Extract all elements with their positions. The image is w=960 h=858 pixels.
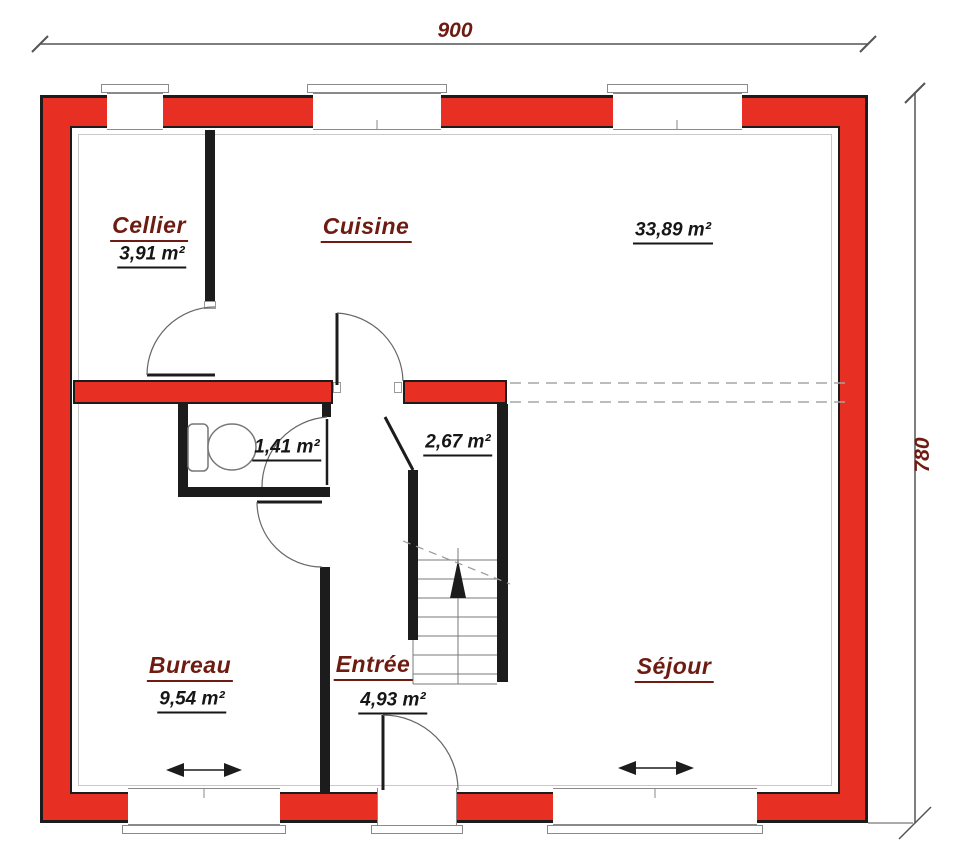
area-label-wc: 1,41 m² bbox=[252, 437, 321, 462]
wall-cellier-cuisine bbox=[205, 130, 215, 305]
dimension-tick bbox=[899, 807, 931, 839]
dimension-tick bbox=[32, 36, 48, 52]
dimension-tick bbox=[860, 36, 876, 52]
area-label-entree: 4,93 m² bbox=[358, 690, 427, 715]
window-sill-kitchen-right bbox=[607, 84, 748, 93]
wall-interior-red-right bbox=[403, 380, 507, 404]
window-sill-cellier bbox=[101, 84, 169, 93]
wall-stairs-right bbox=[497, 404, 508, 682]
wall-interior-red-left bbox=[73, 380, 333, 404]
window-cuisine bbox=[313, 93, 441, 130]
room-label-cuisine: Cuisine bbox=[321, 213, 412, 243]
window-sill-cuisine bbox=[307, 84, 447, 93]
window-sill-sejour bbox=[547, 825, 763, 834]
wall-wc-bottom bbox=[178, 487, 330, 497]
window-cellier bbox=[107, 93, 163, 130]
room-label-entree: Entrée bbox=[334, 651, 413, 681]
dimension-right-label: 780 bbox=[911, 437, 935, 472]
dimension-tick bbox=[905, 83, 925, 103]
window-sill-bureau bbox=[122, 825, 286, 834]
wall-stairs-left bbox=[408, 470, 418, 640]
window-bureau bbox=[128, 788, 280, 825]
room-label-bureau: Bureau bbox=[147, 652, 233, 682]
wall-bureau-entree bbox=[320, 567, 330, 792]
area-label-cellier: 3,91 m² bbox=[117, 244, 186, 269]
room-label-sejour: Séjour bbox=[635, 653, 714, 683]
wall-wc-door-jamb bbox=[322, 404, 331, 417]
room-label-cellier: Cellier bbox=[110, 212, 188, 242]
dimension-top-label: 900 bbox=[437, 19, 472, 43]
window-kitchen-right bbox=[613, 93, 742, 130]
door-jamb-mark bbox=[333, 382, 341, 393]
door-jamb-mark bbox=[394, 382, 402, 393]
window-sejour bbox=[553, 788, 757, 825]
door-jamb-mark bbox=[204, 301, 216, 309]
entrance-threshold bbox=[371, 825, 463, 834]
area-label-bureau: 9,54 m² bbox=[157, 689, 226, 714]
entrance-door-opening bbox=[377, 788, 457, 825]
area-label-cuisine-sejour: 33,89 m² bbox=[633, 220, 713, 245]
floor-plan: 900 780 Cellier 3,91 m² Cuisine 33,89 m²… bbox=[0, 0, 960, 858]
area-label-stair-hall: 2,67 m² bbox=[423, 432, 492, 457]
wall-wc-left bbox=[178, 404, 188, 497]
